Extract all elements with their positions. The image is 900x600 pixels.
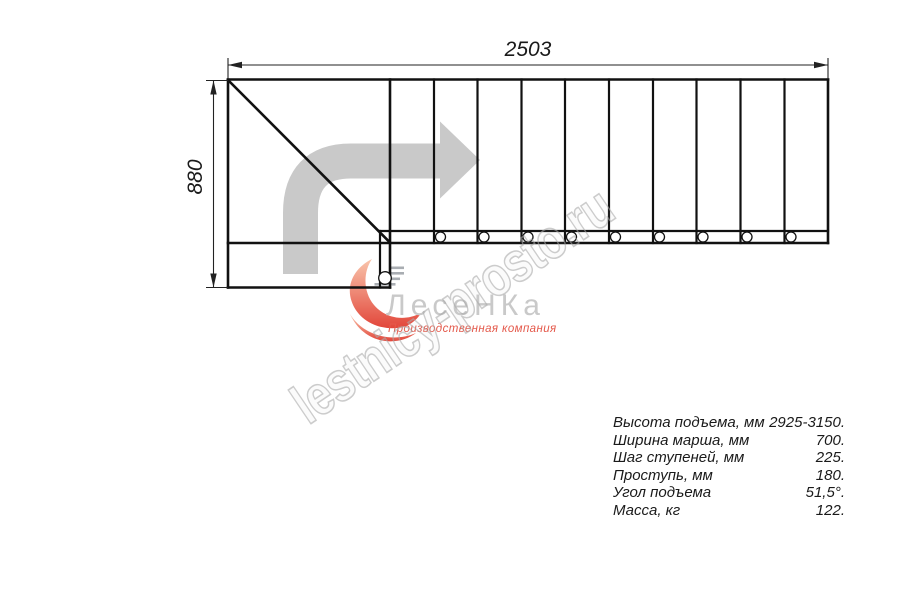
entry-post-circle	[379, 272, 392, 285]
spec-row: Высота подъема, мм 2925-3150.	[613, 414, 845, 432]
spec-table: Высота подъема, мм 2925-3150. Ширина мар…	[613, 414, 845, 519]
spec-value: 122.	[816, 502, 845, 520]
spec-value: 180.	[816, 467, 845, 485]
baluster-circles	[379, 232, 796, 284]
left-dimension-label: 880	[184, 159, 208, 194]
logo-name: ЛесеНКа	[386, 291, 545, 321]
spec-label: Ширина марша, мм	[613, 432, 749, 450]
spec-row: Ширина марша, мм 700.	[613, 432, 845, 450]
logo-tagline: Производственная компания	[388, 324, 557, 336]
spec-row: Шаг ступеней, мм 225.	[613, 449, 845, 467]
spec-label: Проступь, мм	[613, 467, 713, 485]
spec-label: Высота подъема, мм	[613, 414, 765, 432]
spec-row: Угол подъема 51,5°.	[613, 484, 845, 502]
spec-row: Проступь, мм 180.	[613, 467, 845, 485]
spec-value: 225.	[816, 449, 845, 467]
direction-arrowhead	[440, 122, 480, 199]
top-dimension-label: 2503	[505, 38, 552, 62]
spec-value: 51,5°.	[806, 484, 845, 502]
spec-label: Масса, кг	[613, 502, 680, 520]
spec-label: Угол подъема	[613, 484, 711, 502]
spec-value: 700.	[816, 432, 845, 450]
page: 2503 880 ЛесеНКа Производственная компан…	[0, 0, 900, 600]
spec-row: Масса, кг 122.	[613, 502, 845, 520]
spec-value: 2925-3150.	[769, 414, 845, 432]
left-dimension	[206, 81, 228, 288]
tread-lines	[434, 80, 785, 244]
spec-label: Шаг ступеней, мм	[613, 449, 744, 467]
